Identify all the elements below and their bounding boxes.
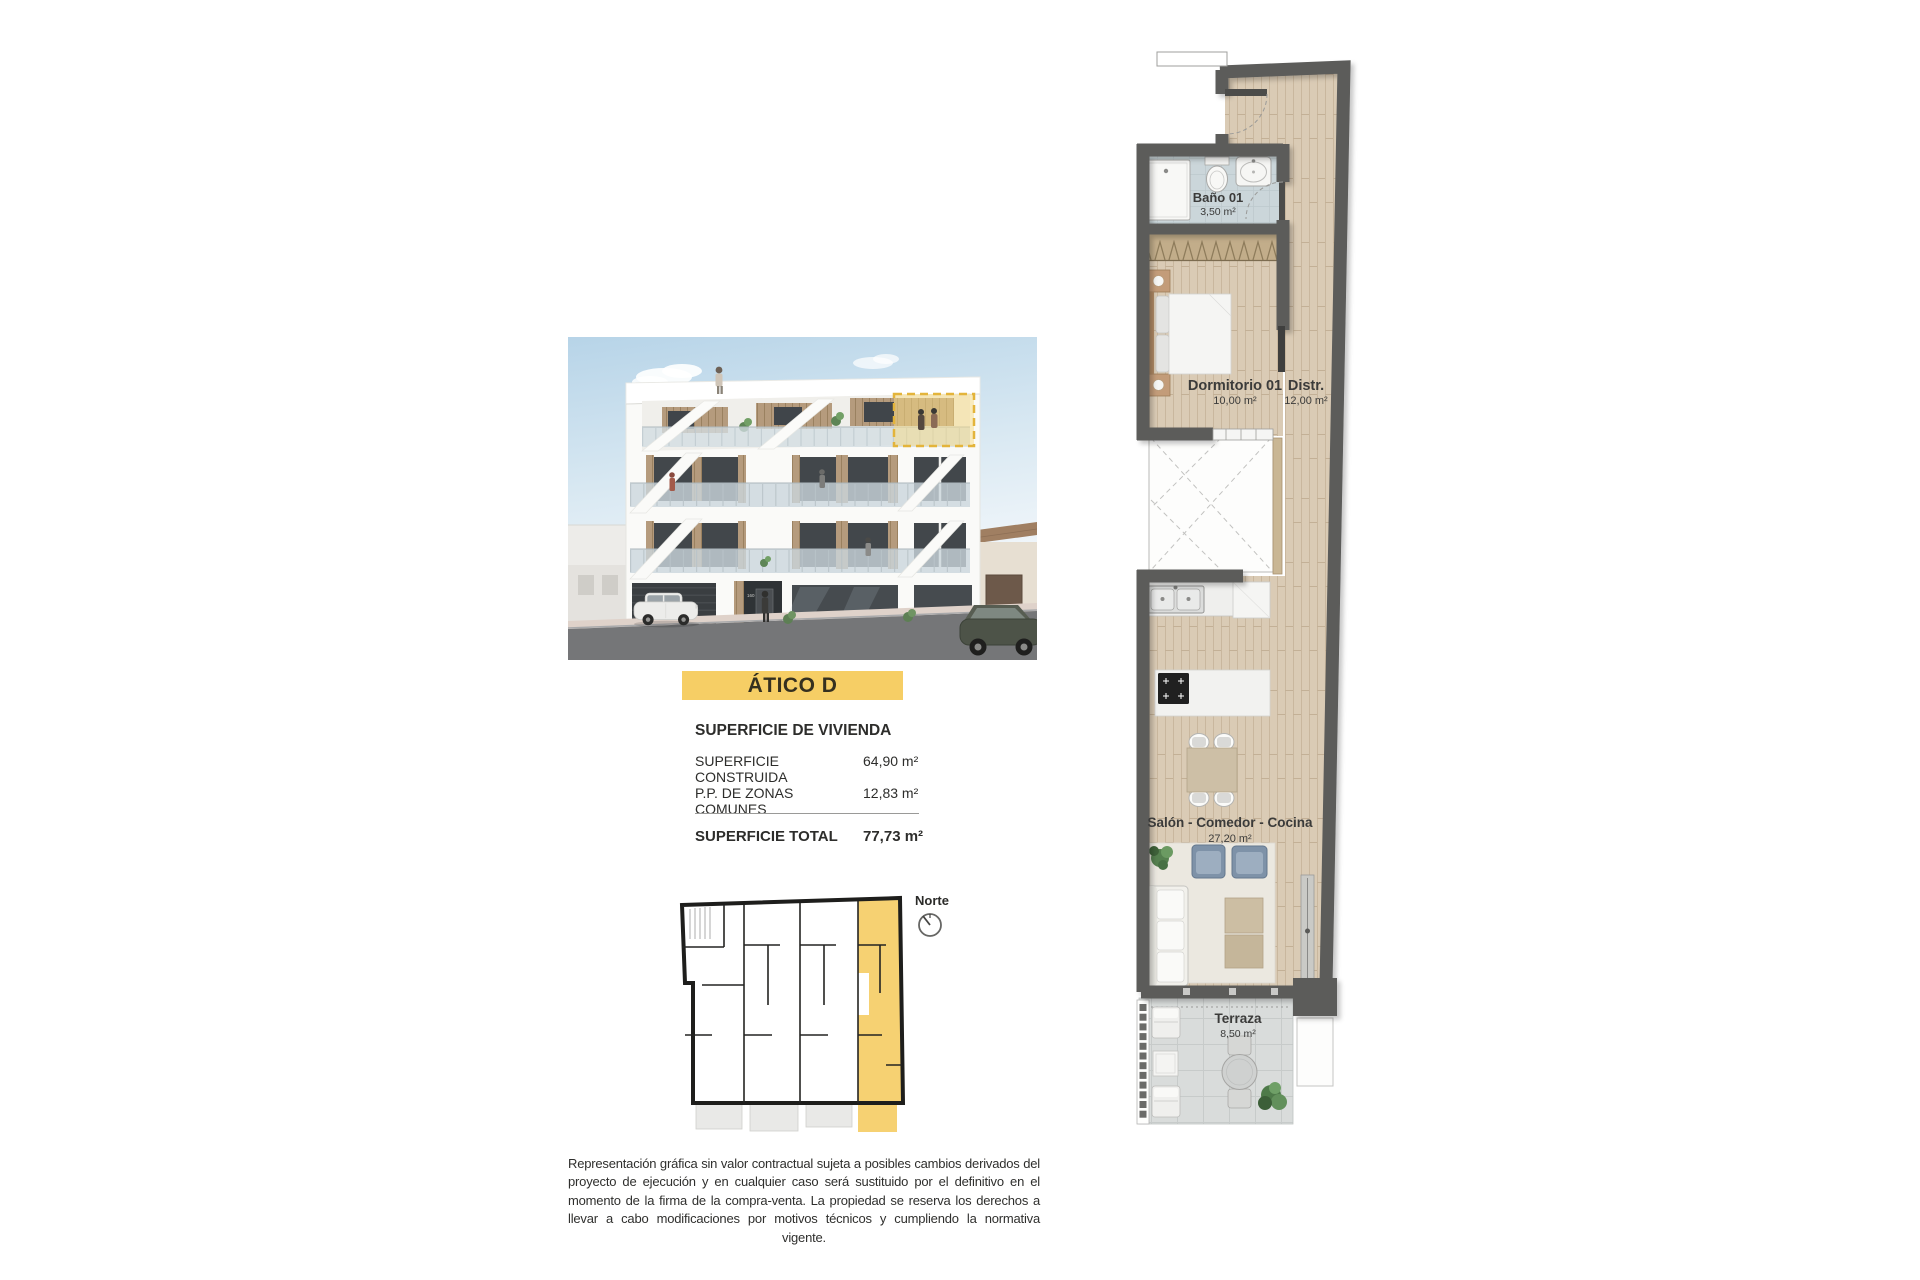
room-area-distributor: 12,00 m² (1284, 395, 1328, 407)
cooktop (1158, 673, 1189, 704)
wardrobe (1143, 232, 1277, 260)
door-handle (1305, 929, 1310, 934)
surface-row-label: SUPERFICIE CONSTRUIDA (695, 753, 863, 785)
surface-total-value: 77,73 m² (863, 828, 923, 845)
key-plan-terraces (696, 1103, 852, 1131)
key-plan-highlighted-unit (858, 898, 903, 1132)
room-label-bathroom: Baño 01 (1193, 190, 1244, 205)
faucet (1174, 586, 1178, 590)
disclaimer-text: Representación gráfica sin valor contrac… (568, 1155, 1040, 1247)
surface-total-row: SUPERFICIE TOTAL 77,73 m² (695, 828, 923, 845)
surface-row-value: 64,90 m² (863, 753, 918, 785)
surface-row-construida: SUPERFICIE CONSTRUIDA 64,90 m² (695, 753, 918, 785)
room-label-distributor: Distr. (1288, 378, 1324, 394)
north-compass: Norte (915, 893, 949, 936)
surface-panel: SUPERFICIE DE VIVIENDA SUPERFICIE CONSTR… (695, 722, 955, 872)
entry-door-leaf (1225, 89, 1267, 96)
terrace-door (1301, 875, 1314, 988)
title-banner: ÁTICO D (682, 671, 903, 700)
kitchen-counter (1143, 582, 1270, 618)
floor-row-2 (630, 519, 970, 579)
terrace-chair (1228, 1089, 1251, 1108)
room-area-bathroom: 3,50 m² (1200, 206, 1236, 218)
duvet (1169, 294, 1231, 374)
building-render-svg: 160 (568, 337, 1037, 660)
lightwell (1149, 436, 1273, 572)
adjacent-roof (1297, 1018, 1333, 1086)
left-neighbor-building (568, 525, 628, 627)
pillow (1156, 335, 1169, 372)
room-label-livingroom: Salón - Comedor - Cocina (1147, 815, 1313, 830)
side-table (1153, 1051, 1178, 1076)
room-area-bedroom: 10,00 m² (1213, 395, 1257, 407)
pillow (1156, 296, 1169, 333)
room-label-terrace: Terraza (1214, 1011, 1262, 1026)
bedroom-sliding-door (1278, 326, 1285, 372)
kitchen-island (1155, 670, 1270, 716)
coffee-table (1225, 898, 1263, 968)
floor-row-1 (630, 453, 970, 513)
corridor-ledge (1273, 438, 1282, 574)
surface-header: SUPERFICIE DE VIVIENDA (695, 722, 891, 740)
round-table (1222, 1055, 1257, 1090)
entrance-number: 160 (747, 593, 755, 598)
room-label-bedroom: Dormitorio 01 (1188, 378, 1282, 394)
bedroom-window (1213, 429, 1273, 440)
key-plan-svg: Norte (672, 885, 972, 1145)
page-title: ÁTICO D (748, 674, 838, 698)
toilet-tank (1205, 157, 1229, 165)
room-area-terrace: 8,50 m² (1220, 1028, 1256, 1040)
floor-plan-svg: Baño 01 3,50 m² Dormitorio 01 10,00 m² D… (1125, 30, 1415, 1190)
building-render: 160 (568, 337, 1037, 660)
key-plan: Norte (672, 885, 972, 1145)
dining-table (1187, 748, 1237, 792)
floor-plan: Baño 01 3,50 m² Dormitorio 01 10,00 m² D… (1125, 30, 1415, 1190)
surface-total-label: SUPERFICIE TOTAL (695, 828, 863, 845)
shower-tray (1146, 160, 1190, 220)
compass-label: Norte (915, 893, 949, 908)
sofa (1147, 886, 1188, 986)
surface-divider (695, 813, 919, 814)
shower-drain (1164, 169, 1168, 173)
bathroom-door-leaf (1279, 182, 1285, 220)
room-area-livingroom: 27,20 m² (1208, 833, 1252, 845)
roof-parapet-above-entry (1157, 52, 1227, 66)
